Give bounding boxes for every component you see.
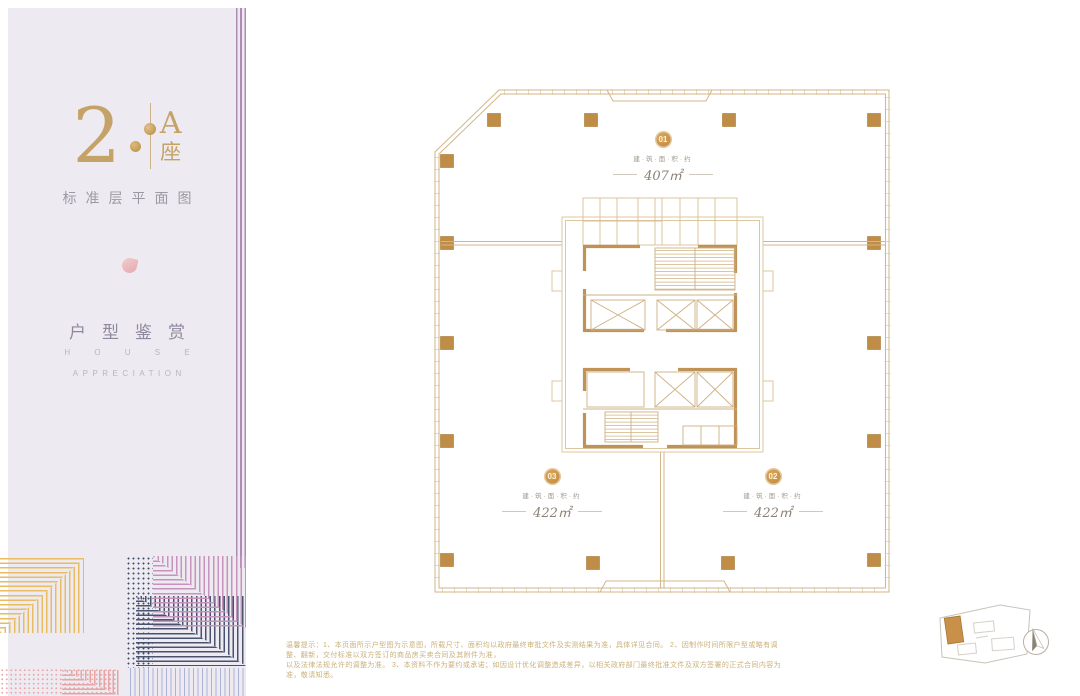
disclaimer-line-2: 以及法律法规允许的调整为准。 3、本资料不作为要约或承诺；如因设计优化调整造成差…: [286, 661, 791, 681]
unit-area-caption: 建·筑·面·积·约: [703, 490, 843, 500]
block-logo: 2 A 座: [8, 100, 246, 172]
site-keymap: [930, 596, 1070, 688]
disclaimer: 温馨提示：1、本页面所示户型图为示意图，所载尺寸、面积均以政府最终审批文件及实测…: [286, 641, 791, 681]
unit-area-row: 422㎡: [482, 502, 622, 521]
unit-area-row: 422㎡: [703, 502, 843, 521]
dash-left: [613, 174, 637, 175]
core-upper-rooms: [583, 198, 737, 245]
unit-area-caption: 建·筑·面·积·约: [593, 153, 733, 163]
gold-dot-icon: [130, 141, 141, 152]
block-number: 2: [72, 100, 120, 172]
unit-label-03: 03 建·筑·面·积·约 422㎡: [482, 468, 622, 521]
unit-label-01: 01 建·筑·面·积·约 407㎡: [593, 131, 733, 184]
building-letter: A: [160, 109, 182, 139]
brochure-page: 2 A 座 标准层平面图 户型鉴赏 H O U S E APPRECIATION: [0, 0, 1080, 696]
core-lower-elevators: [583, 372, 737, 409]
dash-right: [689, 174, 713, 175]
unit-area-row: 407㎡: [593, 165, 733, 184]
building-suffix: 座: [160, 142, 181, 163]
unit-label-02: 02 建·筑·面·积·约 422㎡: [703, 468, 843, 521]
unit-number-badge: 03: [544, 468, 561, 485]
dash-left: [502, 511, 526, 512]
dash-right: [799, 511, 823, 512]
disclaimer-line-1: 温馨提示：1、本页面所示户型图为示意图，所载尺寸、面积均以政府最终审批文件及实测…: [286, 641, 791, 661]
unit-split-lines: [441, 242, 885, 589]
core-lower-stair: [605, 412, 737, 445]
unit-number-badge: 01: [655, 131, 672, 148]
unit-area-caption: 建·筑·面·积·约: [482, 490, 622, 500]
section-title-en-2: APPRECIATION: [8, 369, 246, 378]
unit-area-value: 422㎡: [533, 502, 571, 521]
building-label: A 座: [160, 109, 182, 163]
pattern-gold-corner: [0, 558, 84, 633]
keymap-highlight-unit: [944, 616, 963, 644]
core-upper-elevators: [591, 300, 733, 330]
unit-number-badge: 02: [765, 468, 782, 485]
plan-caption: 标准层平面图: [8, 188, 246, 208]
dash-right: [578, 511, 602, 512]
pattern-mauve-corner: [153, 556, 246, 628]
unit-area-value: 407㎡: [644, 165, 682, 184]
pattern-pink-corner: [62, 670, 120, 696]
petal-icon: [120, 256, 138, 274]
section-title: 户型鉴赏: [8, 318, 246, 343]
dash-left: [723, 511, 747, 512]
section-title-en-1: H O U S E: [8, 348, 246, 357]
unit-area-value: 422㎡: [754, 502, 792, 521]
core-upper-stair: [583, 248, 737, 295]
divider-bar: [150, 103, 151, 169]
purple-stripe-pattern: [236, 8, 247, 568]
pattern-lavender-stripes: [130, 668, 246, 696]
